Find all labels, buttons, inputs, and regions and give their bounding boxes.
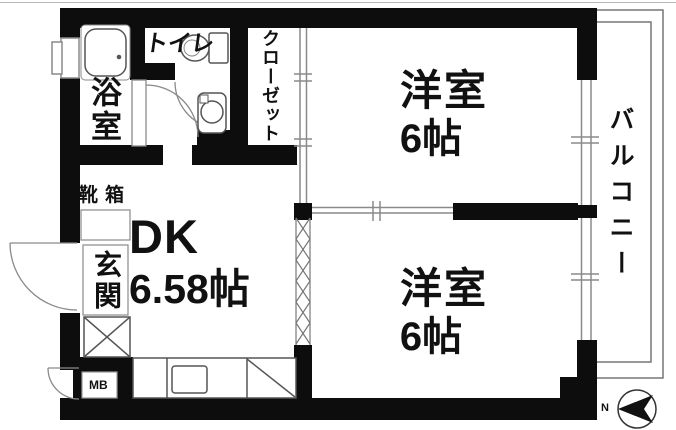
wall-left-1 [60, 8, 80, 38]
wall-room-divider [453, 203, 578, 220]
dk-room-name: DK [129, 213, 250, 260]
entrance-room-label: 玄関 [92, 250, 120, 312]
shoebox-label: 靴箱 [79, 186, 131, 205]
wall-left-2 [60, 78, 80, 243]
wall-corner-bottom-right [560, 377, 597, 400]
western-room-top-size: 6帖 [297, 118, 565, 160]
western-room-bottom-name: 洋室 [310, 268, 578, 310]
wall-right-1 [577, 8, 597, 80]
kitchen-sink-icon [172, 366, 207, 393]
bathtub-icon [81, 25, 130, 80]
bath-room-label: 浴室 [88, 76, 119, 144]
bath-window-sill [52, 42, 62, 74]
appliance-space-box [84, 317, 130, 357]
wall-closet-left [230, 8, 248, 163]
kitchen-counter [133, 358, 296, 398]
floor-plan: 浴室 トイレ クローゼット 洋室 6帖 洋室 6帖 DK 6.58帖 靴箱 玄関… [0, 0, 676, 430]
western-room-top-label: 洋室 6帖 [310, 70, 578, 160]
entrance-door-arc [10, 243, 77, 310]
dk-room-size: 6.58帖 [129, 269, 250, 310]
washbasin-icon [198, 93, 226, 133]
western-room-bottom-label: 洋室 6帖 [310, 268, 578, 358]
compass-north-label: N [601, 403, 609, 414]
western-room-bottom-size: 6帖 [297, 316, 565, 358]
bath-window [61, 38, 79, 78]
dk-room-label: DK 6.58帖 [129, 213, 250, 310]
compass-icon [618, 390, 656, 428]
wall-right-2 [577, 205, 597, 218]
wall-bath-bottom [80, 145, 163, 165]
meter-box-label: MB [89, 379, 108, 391]
toilet-room-label: トイレ [143, 32, 215, 55]
wall-junction-cap [294, 203, 312, 220]
bath-door-arc [146, 85, 198, 137]
western-room-top-name: 洋室 [310, 70, 578, 112]
shoe-cabinet-box [81, 210, 130, 240]
bath-door-panel [132, 80, 146, 146]
wall-bottom [60, 398, 597, 420]
floor-plan-drawing [0, 0, 676, 430]
balcony-label: バルコニー [607, 106, 632, 286]
wall-top [60, 8, 597, 28]
closet-room-label: クローゼット [261, 29, 279, 143]
wall-toilet-bottom [140, 63, 175, 80]
